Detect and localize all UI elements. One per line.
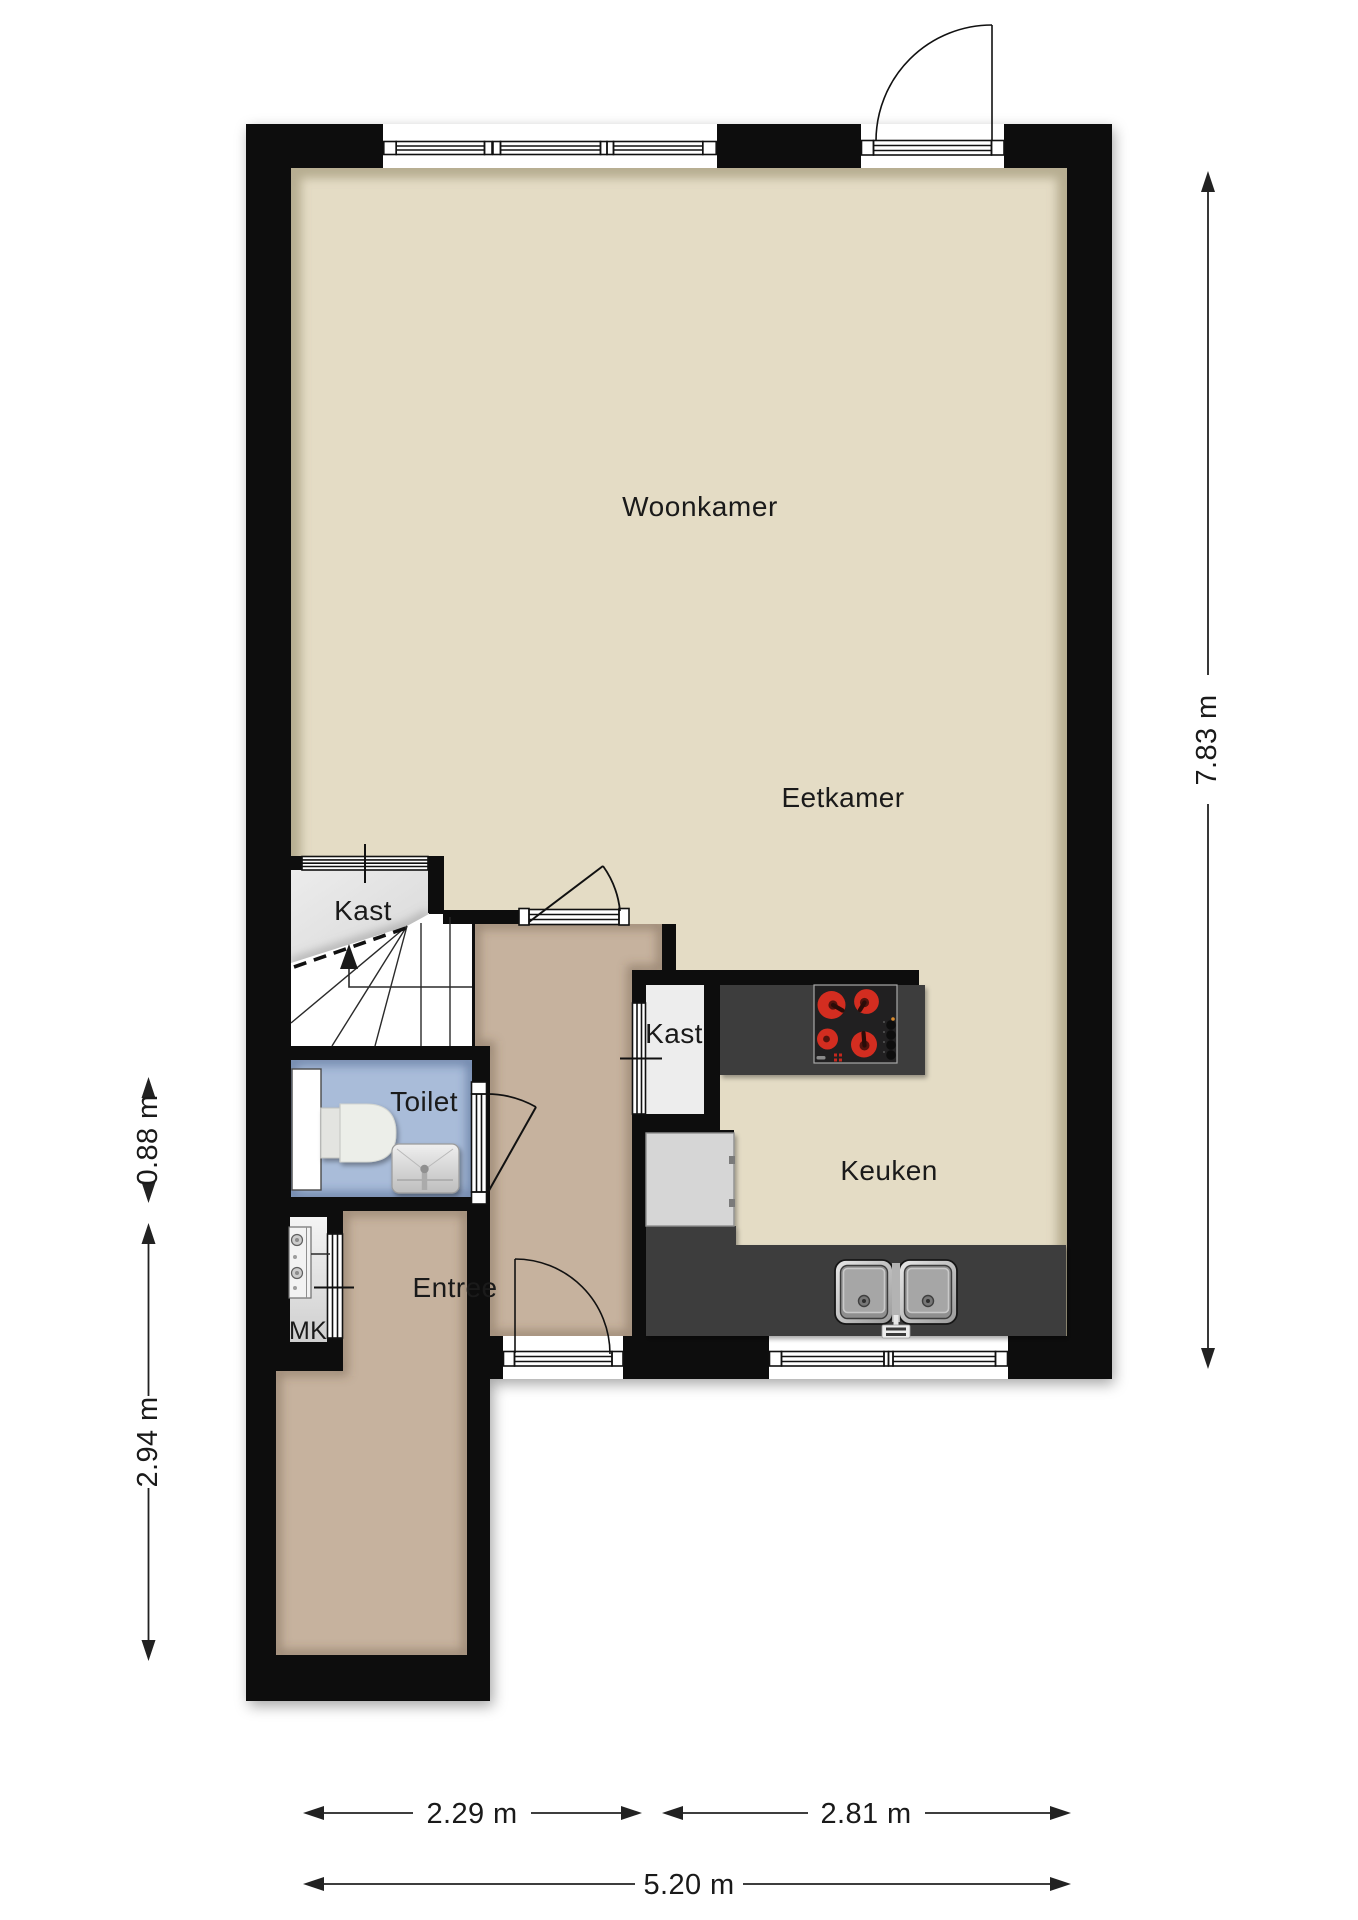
svg-text:2.81 m: 2.81 m: [820, 1798, 911, 1830]
svg-text:Kast: Kast: [645, 1018, 703, 1049]
svg-text:Entree: Entree: [413, 1272, 498, 1303]
svg-text:2.29 m: 2.29 m: [426, 1798, 517, 1830]
svg-text:Eetkamer: Eetkamer: [781, 782, 904, 813]
svg-text:Kast: Kast: [334, 895, 392, 926]
svg-text:Keuken: Keuken: [840, 1155, 937, 1186]
svg-text:5.20 m: 5.20 m: [643, 1869, 734, 1901]
svg-text:Woonkamer: Woonkamer: [622, 491, 778, 522]
svg-text:Toilet: Toilet: [390, 1086, 458, 1117]
svg-text:MK: MK: [289, 1317, 327, 1345]
svg-text:7.83 m: 7.83 m: [1191, 694, 1223, 785]
svg-text:0.88 m: 0.88 m: [132, 1094, 164, 1185]
svg-text:2.94 m: 2.94 m: [132, 1396, 164, 1487]
